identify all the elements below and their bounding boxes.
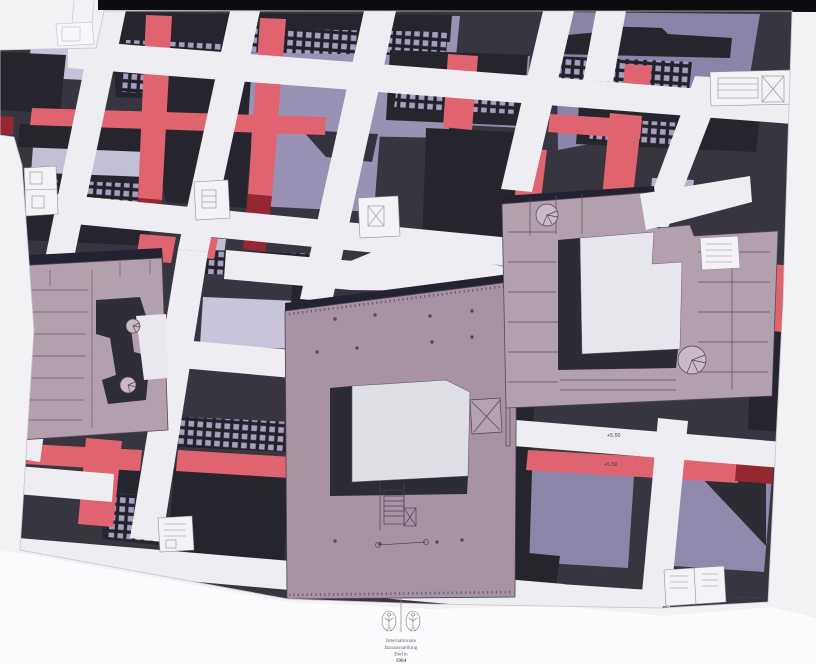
iba-berlin-1984-site-plan-photo: +5.50 +5.50 +1.50 Internationale Bauauss… <box>0 0 816 664</box>
logo-line-3: Berlin <box>394 652 408 658</box>
elevation-label-2: +5.50 <box>604 462 618 468</box>
elevation-label-1: +5.50 <box>607 433 621 439</box>
elevation-label-3: +1.50 <box>594 569 608 575</box>
center-elevator-box <box>470 398 502 434</box>
center-courtyard <box>352 380 470 482</box>
logo-line-2: Bauausstellung <box>385 645 418 651</box>
site-plan-drawing: +5.50 +5.50 +1.50 Internationale Bauauss… <box>0 0 816 664</box>
center-building-plan <box>285 273 517 599</box>
left-building-plan <box>14 248 168 440</box>
logo-line-1: Internationale <box>386 638 417 644</box>
logo-line-4: 1984 <box>396 658 407 664</box>
credit-signature: ·· ····· ······· <box>734 596 762 600</box>
top-black-bar <box>98 0 816 12</box>
